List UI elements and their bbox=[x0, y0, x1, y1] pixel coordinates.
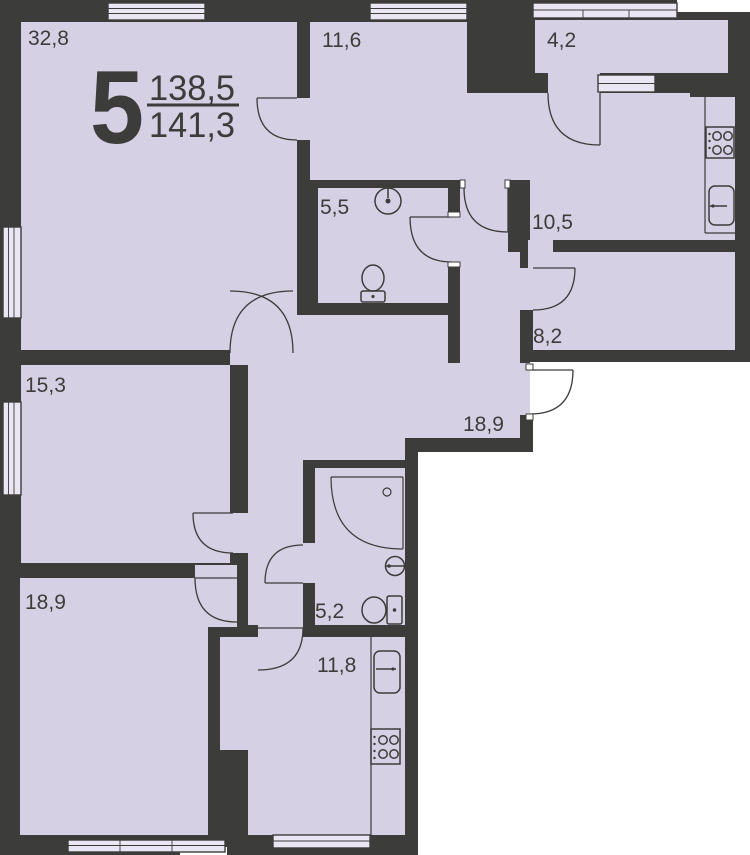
doorway-bathroom-wc bbox=[448, 217, 460, 262]
kitchen-dining-area-label: 11,8 bbox=[317, 654, 356, 677]
bedroom-bottom-floor bbox=[20, 578, 237, 835]
window-living-top bbox=[108, 3, 205, 20]
room-loggia: 4,2 bbox=[535, 20, 728, 73]
window-kitchen-dining bbox=[273, 835, 370, 848]
doorway-bedroom-middle bbox=[230, 513, 248, 553]
apartment-area-lower: 141,3 bbox=[149, 106, 235, 145]
outside-entry bbox=[530, 362, 750, 452]
jamb-bathroom-bottom bbox=[448, 262, 460, 267]
loggia-area-label: 4,2 bbox=[547, 29, 576, 52]
apartment-area-upper: 138,5 bbox=[149, 69, 235, 108]
room-bedroom-bottom: 18,9 bbox=[20, 578, 237, 835]
room-bathroom-wc: 5,5 bbox=[318, 188, 448, 303]
room-bedroom-middle: 15,3 bbox=[21, 365, 230, 563]
jamb-corridor-kitchen-left bbox=[460, 180, 465, 188]
doorway-loggia-kitchen bbox=[548, 73, 600, 93]
shower-room-area-label: 5,2 bbox=[315, 600, 344, 623]
bathroom-wc-area-label: 5,5 bbox=[320, 196, 349, 219]
jamb-entry-top bbox=[526, 364, 533, 370]
room-hall: 8,2 bbox=[528, 240, 735, 350]
window-bedroom-top bbox=[370, 3, 467, 20]
jamb-entry-bottom bbox=[526, 414, 533, 420]
apartment-number: 5 bbox=[90, 50, 144, 166]
bedroom-bottom-area-label: 18,9 bbox=[25, 591, 66, 614]
kitchen-area-label: 10,5 bbox=[532, 211, 573, 234]
outside-bottom-right bbox=[418, 452, 750, 855]
wall-corridor-bottom bbox=[405, 438, 533, 452]
doorway-hall bbox=[520, 268, 533, 310]
floor-plan-svg: 32,8 11,6 4,2 10,5 5,5 8,2 15,3 18,9 5,2… bbox=[0, 0, 750, 855]
corridor-area-label: 18,9 bbox=[463, 413, 504, 436]
hall-area-label: 8,2 bbox=[533, 325, 562, 348]
living-room-area-label: 32,8 bbox=[28, 27, 69, 50]
corridor-doorway-living bbox=[230, 350, 293, 365]
window-loggia-kitchen bbox=[598, 75, 655, 92]
doorway-living-bedroom bbox=[297, 98, 310, 140]
window-bedroom-bottom bbox=[68, 840, 225, 852]
doorway-bedroom-bottom bbox=[195, 565, 237, 578]
room-kitchen: 10,5 bbox=[530, 93, 735, 240]
window-loggia bbox=[533, 3, 677, 18]
bedroom-top-area-label: 11,6 bbox=[322, 29, 361, 52]
jamb-corridor-kitchen-right bbox=[505, 180, 510, 188]
doorway-corridor-kitchen bbox=[463, 180, 508, 188]
window-living-left bbox=[3, 227, 21, 318]
doorway-shower-room bbox=[303, 543, 315, 583]
floor-plan-page: 32,8 11,6 4,2 10,5 5,5 8,2 15,3 18,9 5,2… bbox=[0, 0, 750, 855]
outside-top-right bbox=[677, 0, 750, 12]
window-bedroom-middle-left bbox=[3, 402, 21, 495]
bedroom-middle-area-label: 15,3 bbox=[25, 374, 66, 397]
jamb-bathroom-top bbox=[448, 212, 460, 217]
